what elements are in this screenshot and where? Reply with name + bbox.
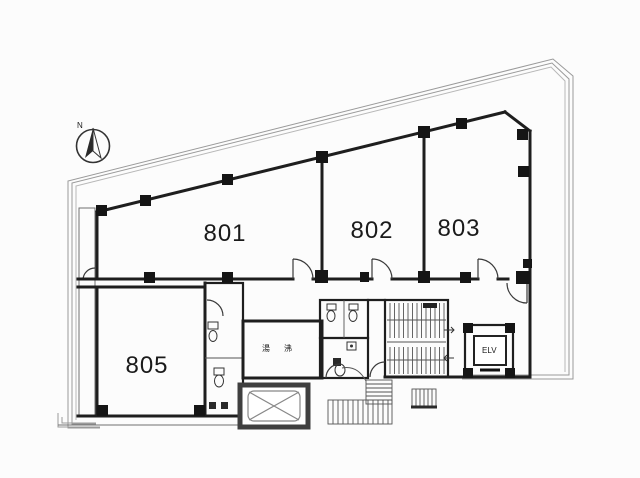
column bbox=[360, 272, 369, 282]
column bbox=[516, 271, 530, 284]
stair-marker bbox=[423, 303, 437, 308]
elevator-corner-bl bbox=[463, 368, 473, 378]
column bbox=[518, 166, 529, 177]
column bbox=[222, 174, 233, 185]
room-805-label: 805 bbox=[125, 352, 168, 379]
column bbox=[140, 195, 151, 206]
elevator-corner-br bbox=[505, 368, 515, 378]
urinal-1 bbox=[209, 402, 216, 409]
floor-plan-drawing: N 湯沸 bbox=[0, 0, 640, 478]
column bbox=[456, 118, 467, 129]
elevator-corner-tr bbox=[505, 323, 515, 333]
column bbox=[316, 151, 328, 163]
column bbox=[144, 272, 155, 283]
column bbox=[96, 205, 107, 216]
compass-label: N bbox=[77, 121, 83, 130]
column bbox=[418, 126, 430, 138]
room-802-label: 802 bbox=[350, 217, 393, 244]
column bbox=[460, 272, 471, 283]
column bbox=[517, 129, 528, 140]
kitchenette-label: 湯沸 bbox=[262, 343, 306, 353]
floor-plan-page: N 湯沸 bbox=[0, 0, 640, 478]
room-801-label: 801 bbox=[203, 220, 246, 247]
column bbox=[194, 405, 205, 416]
room-803-label: 803 bbox=[437, 215, 480, 242]
sink-faucet-icon bbox=[350, 345, 353, 348]
column bbox=[222, 272, 233, 283]
urinal-2 bbox=[221, 402, 228, 409]
column bbox=[418, 271, 430, 283]
column bbox=[523, 259, 532, 268]
column bbox=[97, 405, 108, 416]
shaft-x-box bbox=[240, 385, 308, 427]
elevator-corner-tl bbox=[463, 323, 473, 333]
column bbox=[315, 270, 328, 283]
elevator-label: ELV bbox=[482, 346, 497, 355]
